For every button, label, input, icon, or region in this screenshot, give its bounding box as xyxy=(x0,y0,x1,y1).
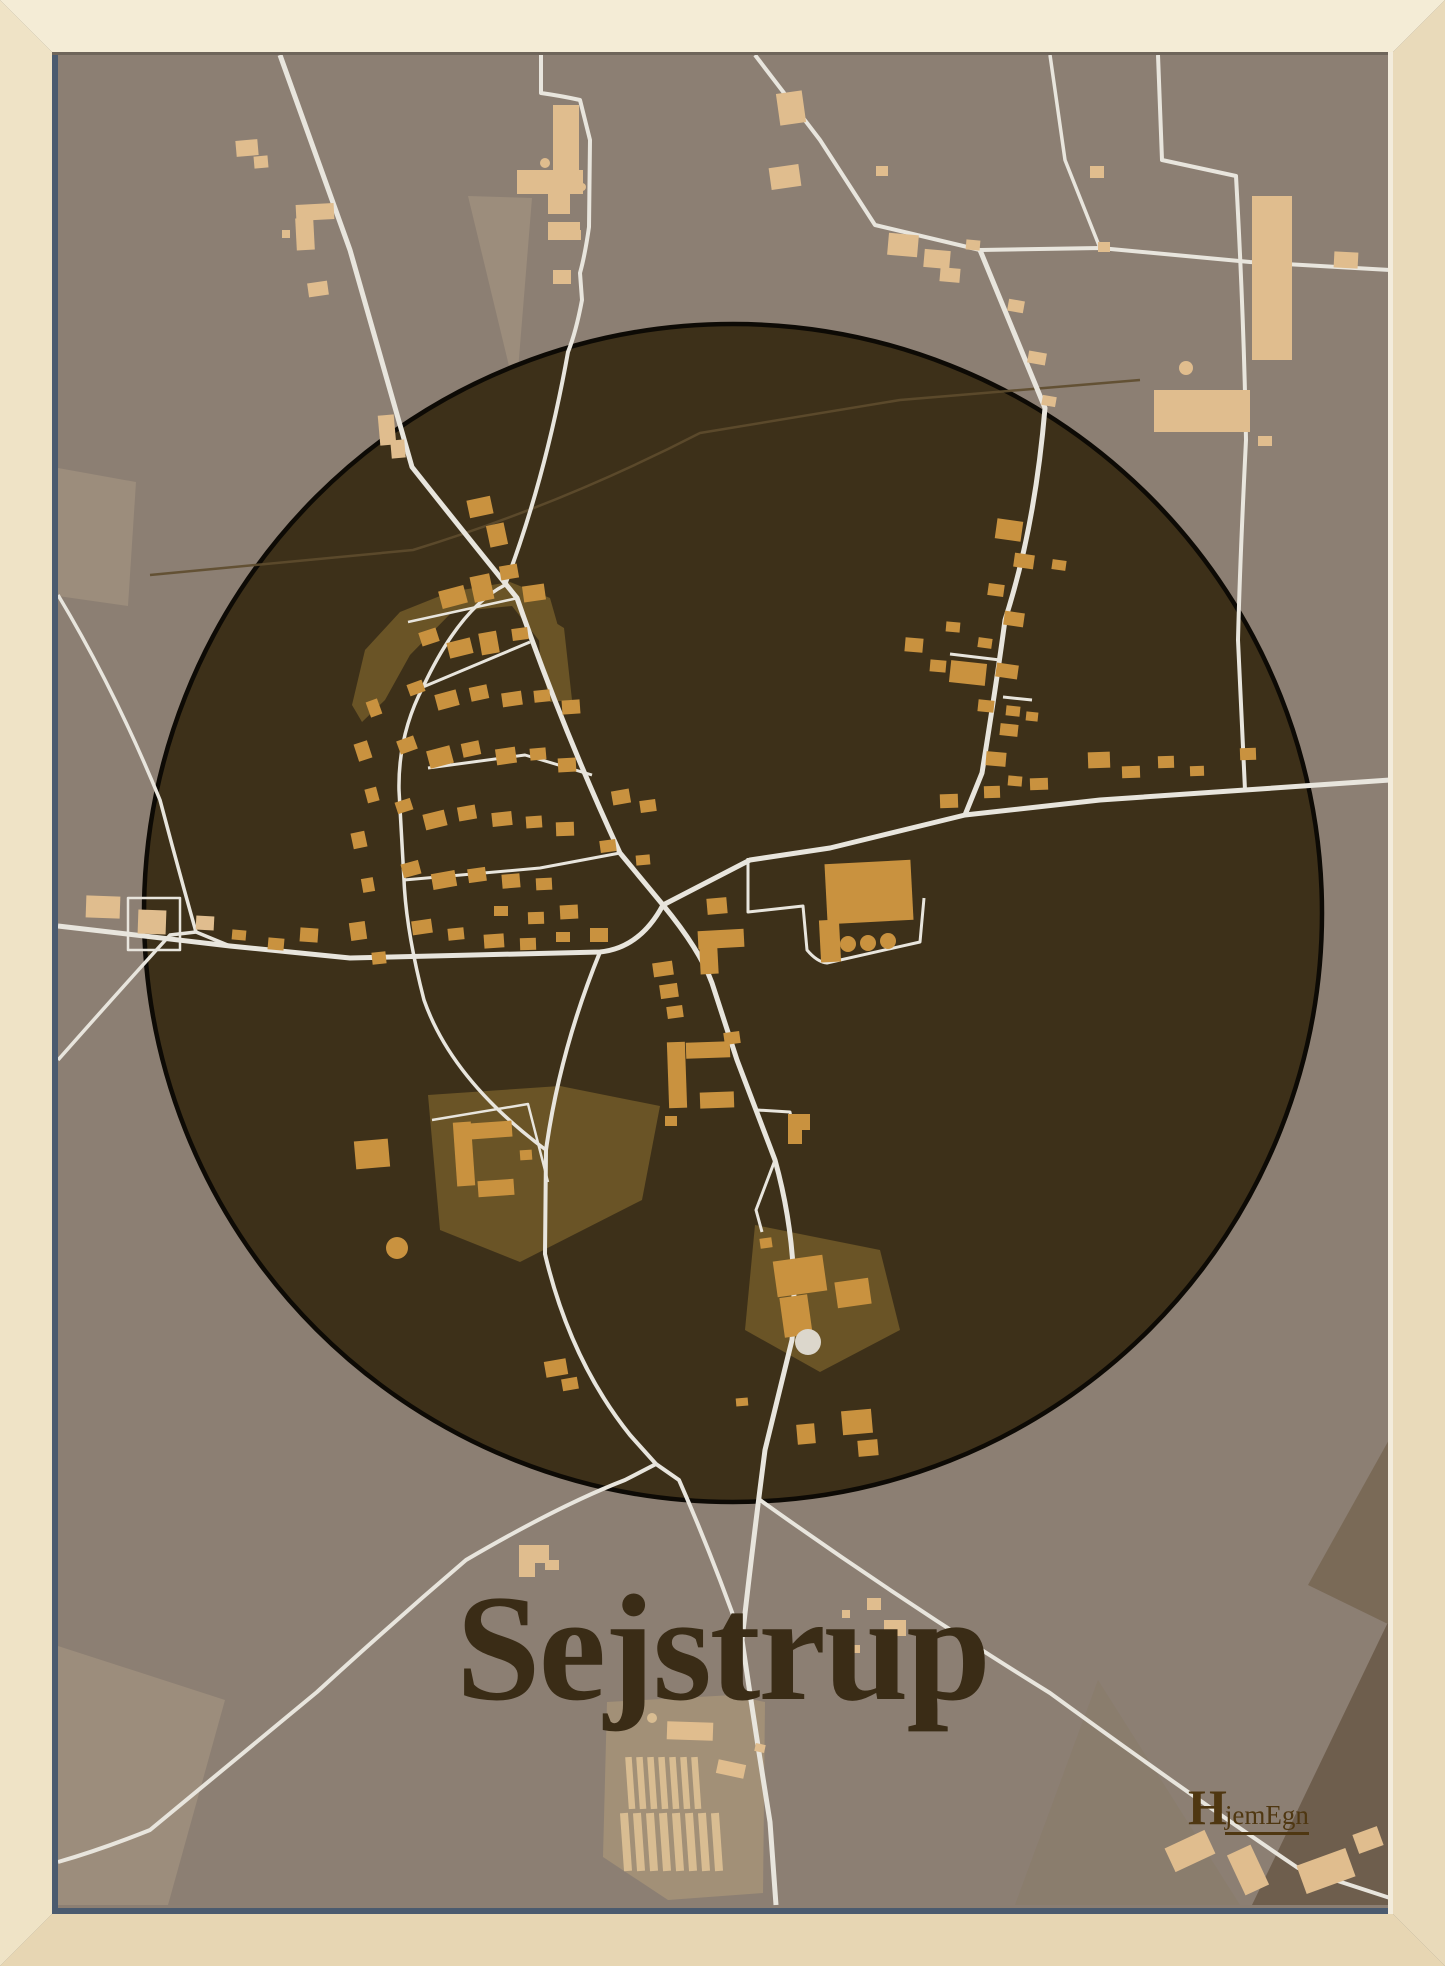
map-dot xyxy=(386,1237,408,1259)
building-inside xyxy=(354,1139,390,1170)
building-outside xyxy=(553,105,579,171)
building-inside xyxy=(494,906,508,916)
frame-shadow-top xyxy=(52,52,1393,55)
frame-right xyxy=(1393,0,1445,1966)
building-inside xyxy=(857,1439,878,1457)
building-outside xyxy=(1258,436,1272,446)
building-inside xyxy=(1003,611,1025,628)
building-inside xyxy=(530,747,547,760)
building-inside xyxy=(478,631,500,656)
building-outside xyxy=(307,281,329,298)
building-inside xyxy=(520,1150,533,1161)
building-outside xyxy=(282,230,290,238)
building-inside xyxy=(819,920,841,963)
building-inside xyxy=(469,1121,512,1140)
building-inside xyxy=(659,983,679,999)
building-inside xyxy=(268,937,285,950)
building-inside xyxy=(1030,778,1048,791)
building-outside xyxy=(569,230,581,240)
building-outside xyxy=(887,233,919,258)
field xyxy=(58,468,136,606)
building-inside xyxy=(520,938,536,951)
building-outside xyxy=(876,166,888,176)
building-inside xyxy=(946,621,961,632)
building-inside xyxy=(665,1116,677,1126)
building-inside xyxy=(999,723,1018,737)
building-inside xyxy=(495,747,517,766)
building-outside xyxy=(548,192,570,214)
brand-rest: jemEgn xyxy=(1225,1800,1309,1835)
building-inside xyxy=(371,951,386,964)
building-inside xyxy=(699,948,718,975)
building-inside xyxy=(491,811,512,827)
frame-top xyxy=(0,0,1445,52)
building-outside xyxy=(1252,196,1292,360)
map-poster: Sejstrup HjemEgn xyxy=(0,0,1445,1966)
building-inside xyxy=(1240,748,1256,761)
building-inside xyxy=(556,822,574,837)
building-inside xyxy=(533,689,550,703)
building-outside xyxy=(138,910,167,935)
building-inside xyxy=(940,794,958,809)
building-inside xyxy=(562,699,581,714)
building-inside xyxy=(1026,711,1039,721)
building-inside xyxy=(484,933,505,948)
building-inside xyxy=(788,1130,802,1144)
building-inside xyxy=(599,839,617,853)
building-inside xyxy=(686,1041,731,1059)
building-outside xyxy=(553,270,571,284)
building-inside xyxy=(501,873,520,889)
building-inside xyxy=(652,961,674,978)
building-inside xyxy=(723,1031,741,1045)
village-circle xyxy=(144,324,1322,1502)
building-inside xyxy=(1190,766,1204,776)
map-dot xyxy=(578,183,586,191)
building-inside xyxy=(349,921,367,941)
building-inside xyxy=(1158,756,1174,769)
building-inside xyxy=(560,905,579,920)
building-inside xyxy=(977,637,992,649)
building-outside xyxy=(966,239,981,250)
building-inside xyxy=(300,927,319,942)
building-inside xyxy=(526,815,543,828)
building-inside xyxy=(736,1397,749,1406)
building-outside xyxy=(1334,251,1359,268)
brand-initial: H xyxy=(1188,1779,1227,1835)
building-inside xyxy=(511,627,529,641)
building-inside xyxy=(1051,559,1066,571)
building-inside xyxy=(985,751,1006,767)
building-inside xyxy=(930,659,947,672)
building-inside xyxy=(759,1237,772,1249)
map-dot xyxy=(1179,361,1193,375)
frame-shadow-bottom xyxy=(52,1908,1393,1914)
building-outside xyxy=(1098,242,1110,252)
building-outside xyxy=(390,439,406,458)
building-inside xyxy=(522,584,546,603)
building-inside xyxy=(773,1255,828,1298)
building-inside xyxy=(841,1409,873,1436)
building-outside xyxy=(939,267,960,283)
building-inside xyxy=(667,1042,687,1109)
building-inside xyxy=(1122,766,1140,779)
building-inside xyxy=(528,912,544,925)
building-outside xyxy=(517,170,583,194)
building-inside xyxy=(700,1091,735,1108)
building-inside xyxy=(995,518,1024,541)
building-inside xyxy=(904,637,923,653)
building-outside xyxy=(923,249,950,269)
building-inside xyxy=(834,1278,871,1308)
building-inside xyxy=(361,877,375,893)
building-inside xyxy=(706,897,727,915)
building-inside xyxy=(796,1423,816,1444)
building-outside xyxy=(254,155,269,168)
building-outside xyxy=(1154,390,1250,432)
building-inside xyxy=(984,786,1000,799)
building-inside xyxy=(477,1179,514,1197)
poster-title: Sejstrup xyxy=(52,1572,1393,1724)
building-outside xyxy=(196,916,215,931)
building-inside xyxy=(411,919,433,936)
building-inside xyxy=(556,932,570,942)
building-inside xyxy=(1088,752,1111,769)
building-outside xyxy=(86,895,121,918)
building-inside xyxy=(1008,775,1023,786)
building-inside xyxy=(698,929,745,949)
map-dot xyxy=(880,933,896,949)
building-inside xyxy=(536,878,553,891)
building-inside xyxy=(977,699,994,713)
building-inside xyxy=(590,928,608,942)
map-dot xyxy=(795,1329,821,1355)
building-outside xyxy=(235,139,258,157)
building-inside xyxy=(558,758,577,773)
building-outside xyxy=(295,218,315,251)
building-inside xyxy=(1013,553,1035,570)
building-outside xyxy=(1090,166,1104,178)
building-inside xyxy=(232,929,247,940)
building-inside xyxy=(666,1005,684,1019)
building-inside xyxy=(636,854,651,865)
building-inside xyxy=(501,691,523,708)
frame-bottom xyxy=(0,1914,1445,1966)
building-inside xyxy=(1006,705,1021,716)
building-inside xyxy=(788,1114,810,1130)
brand-logo: HjemEgn xyxy=(1188,1782,1309,1832)
building-inside xyxy=(447,927,464,941)
frame-left xyxy=(0,0,52,1966)
building-inside xyxy=(639,799,657,813)
building-inside xyxy=(467,867,487,883)
building-outside xyxy=(769,164,802,190)
map-dot xyxy=(860,935,876,951)
map-dot xyxy=(540,158,550,168)
building-outside xyxy=(776,90,806,125)
map-dot xyxy=(840,936,856,952)
building-inside xyxy=(949,660,987,686)
building-inside xyxy=(824,860,913,924)
building-inside xyxy=(987,583,1005,597)
